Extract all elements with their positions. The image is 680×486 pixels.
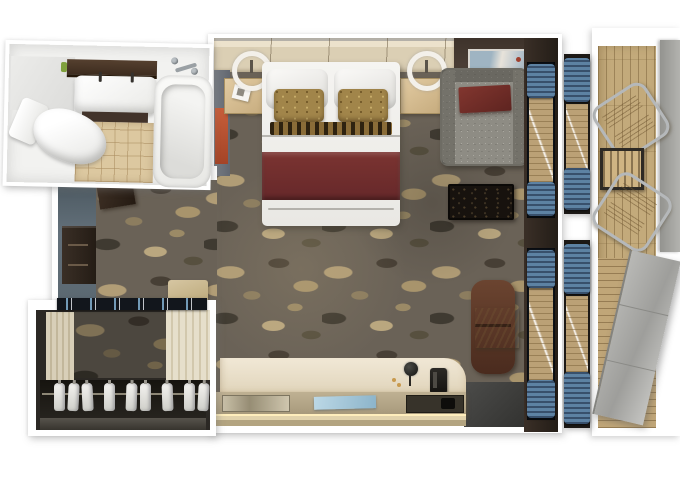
desk-fascia: [216, 414, 466, 426]
hanging-shirt: [81, 383, 93, 412]
curtain-bundle: [527, 250, 555, 288]
metal-tray: [222, 395, 290, 412]
floor-plan-render: [0, 0, 680, 486]
curtain-bundle: [564, 168, 590, 210]
duvet-fold: [262, 135, 400, 137]
curtain-bundle: [564, 244, 590, 294]
bathtub: [153, 75, 213, 188]
bottle-shelf: [57, 298, 207, 310]
gold-trim-band: [270, 122, 392, 135]
sofa-arm-left: [442, 70, 455, 164]
telephone: [430, 368, 447, 394]
wardrobe-room: [28, 300, 216, 436]
carved-black-table: [448, 184, 514, 220]
faucet-knob: [191, 68, 198, 75]
wardrobe-carpet-patch: [74, 312, 166, 378]
minibar-cabinet: [62, 226, 96, 284]
clothes-rail-area: [40, 380, 206, 418]
faucet: [99, 72, 102, 82]
desk-lamp: [404, 362, 418, 376]
hanging-shirt: [184, 383, 195, 411]
window-glass-deck-view: [566, 104, 588, 170]
wardrobe-interior: [36, 310, 210, 430]
hanging-shirt: [126, 383, 138, 411]
sofa: [440, 68, 528, 166]
hanging-shirt: [67, 383, 79, 412]
window-lower: [527, 248, 555, 420]
tub-basin: [160, 84, 206, 179]
faucet-knob: [171, 57, 178, 64]
soap-accessory: [61, 62, 67, 72]
faucet: [131, 72, 134, 82]
double-bed: [262, 62, 400, 226]
curtain-bundle: [527, 380, 555, 418]
dark-tray: [406, 395, 464, 413]
tub-faucet: [171, 55, 203, 80]
maroon-throw: [458, 85, 511, 114]
window-glass-deck-view: [566, 296, 588, 372]
curtain-bundle: [564, 58, 590, 102]
window-strip-upper: [564, 54, 590, 214]
cabinet-handle: [68, 244, 88, 246]
hanging-shirt: [197, 383, 209, 412]
gold-accessory: [397, 383, 401, 387]
window-strip-lower: [564, 240, 590, 428]
right-window-wall: [524, 38, 558, 432]
gold-pillow-left: [274, 89, 324, 122]
window-upper: [527, 62, 555, 218]
curtain-bundle: [564, 372, 590, 424]
window-glass-deck-view: [529, 98, 553, 182]
hanging-shirt: [140, 383, 151, 411]
hanging-shirt: [54, 383, 65, 411]
cabinet-handle: [68, 264, 88, 266]
bathroom-room: [2, 40, 213, 190]
hanging-shirt: [104, 383, 115, 411]
wardrobe-floor: [40, 418, 206, 430]
wardrobe-wall-left: [46, 312, 74, 380]
maroon-bed-runner: [262, 152, 400, 200]
orange-wall-art: [215, 108, 228, 164]
clothes-rod: [42, 393, 204, 395]
blue-folder: [314, 395, 376, 410]
gold-accessory: [392, 378, 396, 382]
wardrobe-wall-right: [166, 310, 210, 380]
hanging-shirt: [162, 383, 174, 411]
curtain-bundle: [527, 64, 555, 98]
duvet-foot-crease: [268, 208, 394, 210]
window-glass-deck-view: [529, 288, 553, 380]
side-table: [475, 308, 519, 348]
curtain-bundle: [527, 182, 555, 216]
bathroom-interior: [7, 44, 210, 186]
bedroom-room: [208, 34, 562, 433]
gold-pillow-right: [338, 89, 388, 122]
sofa-back: [455, 70, 513, 82]
